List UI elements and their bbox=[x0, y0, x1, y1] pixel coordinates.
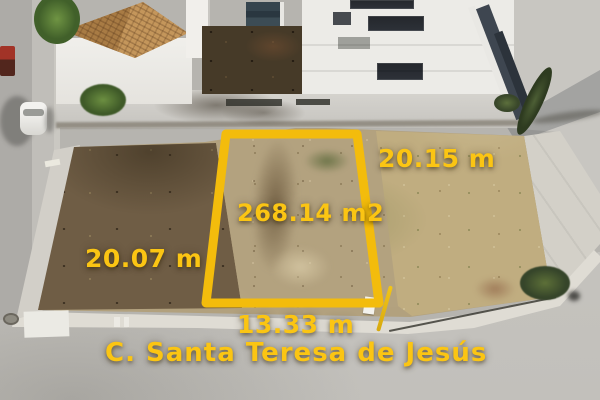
aerial-lot-photo: 268.14 m2 20.15 m 20.07 m 13.33 m C. San… bbox=[0, 0, 600, 400]
left-side-measurement: 20.07 m bbox=[85, 246, 197, 271]
right-side-measurement: 20.15 m bbox=[378, 146, 480, 171]
street-name-label: C. Santa Teresa de Jesús bbox=[105, 340, 475, 366]
area-label: 268.14 m2 bbox=[237, 201, 367, 225]
frontage-measurement: 13.33 m bbox=[237, 312, 347, 337]
